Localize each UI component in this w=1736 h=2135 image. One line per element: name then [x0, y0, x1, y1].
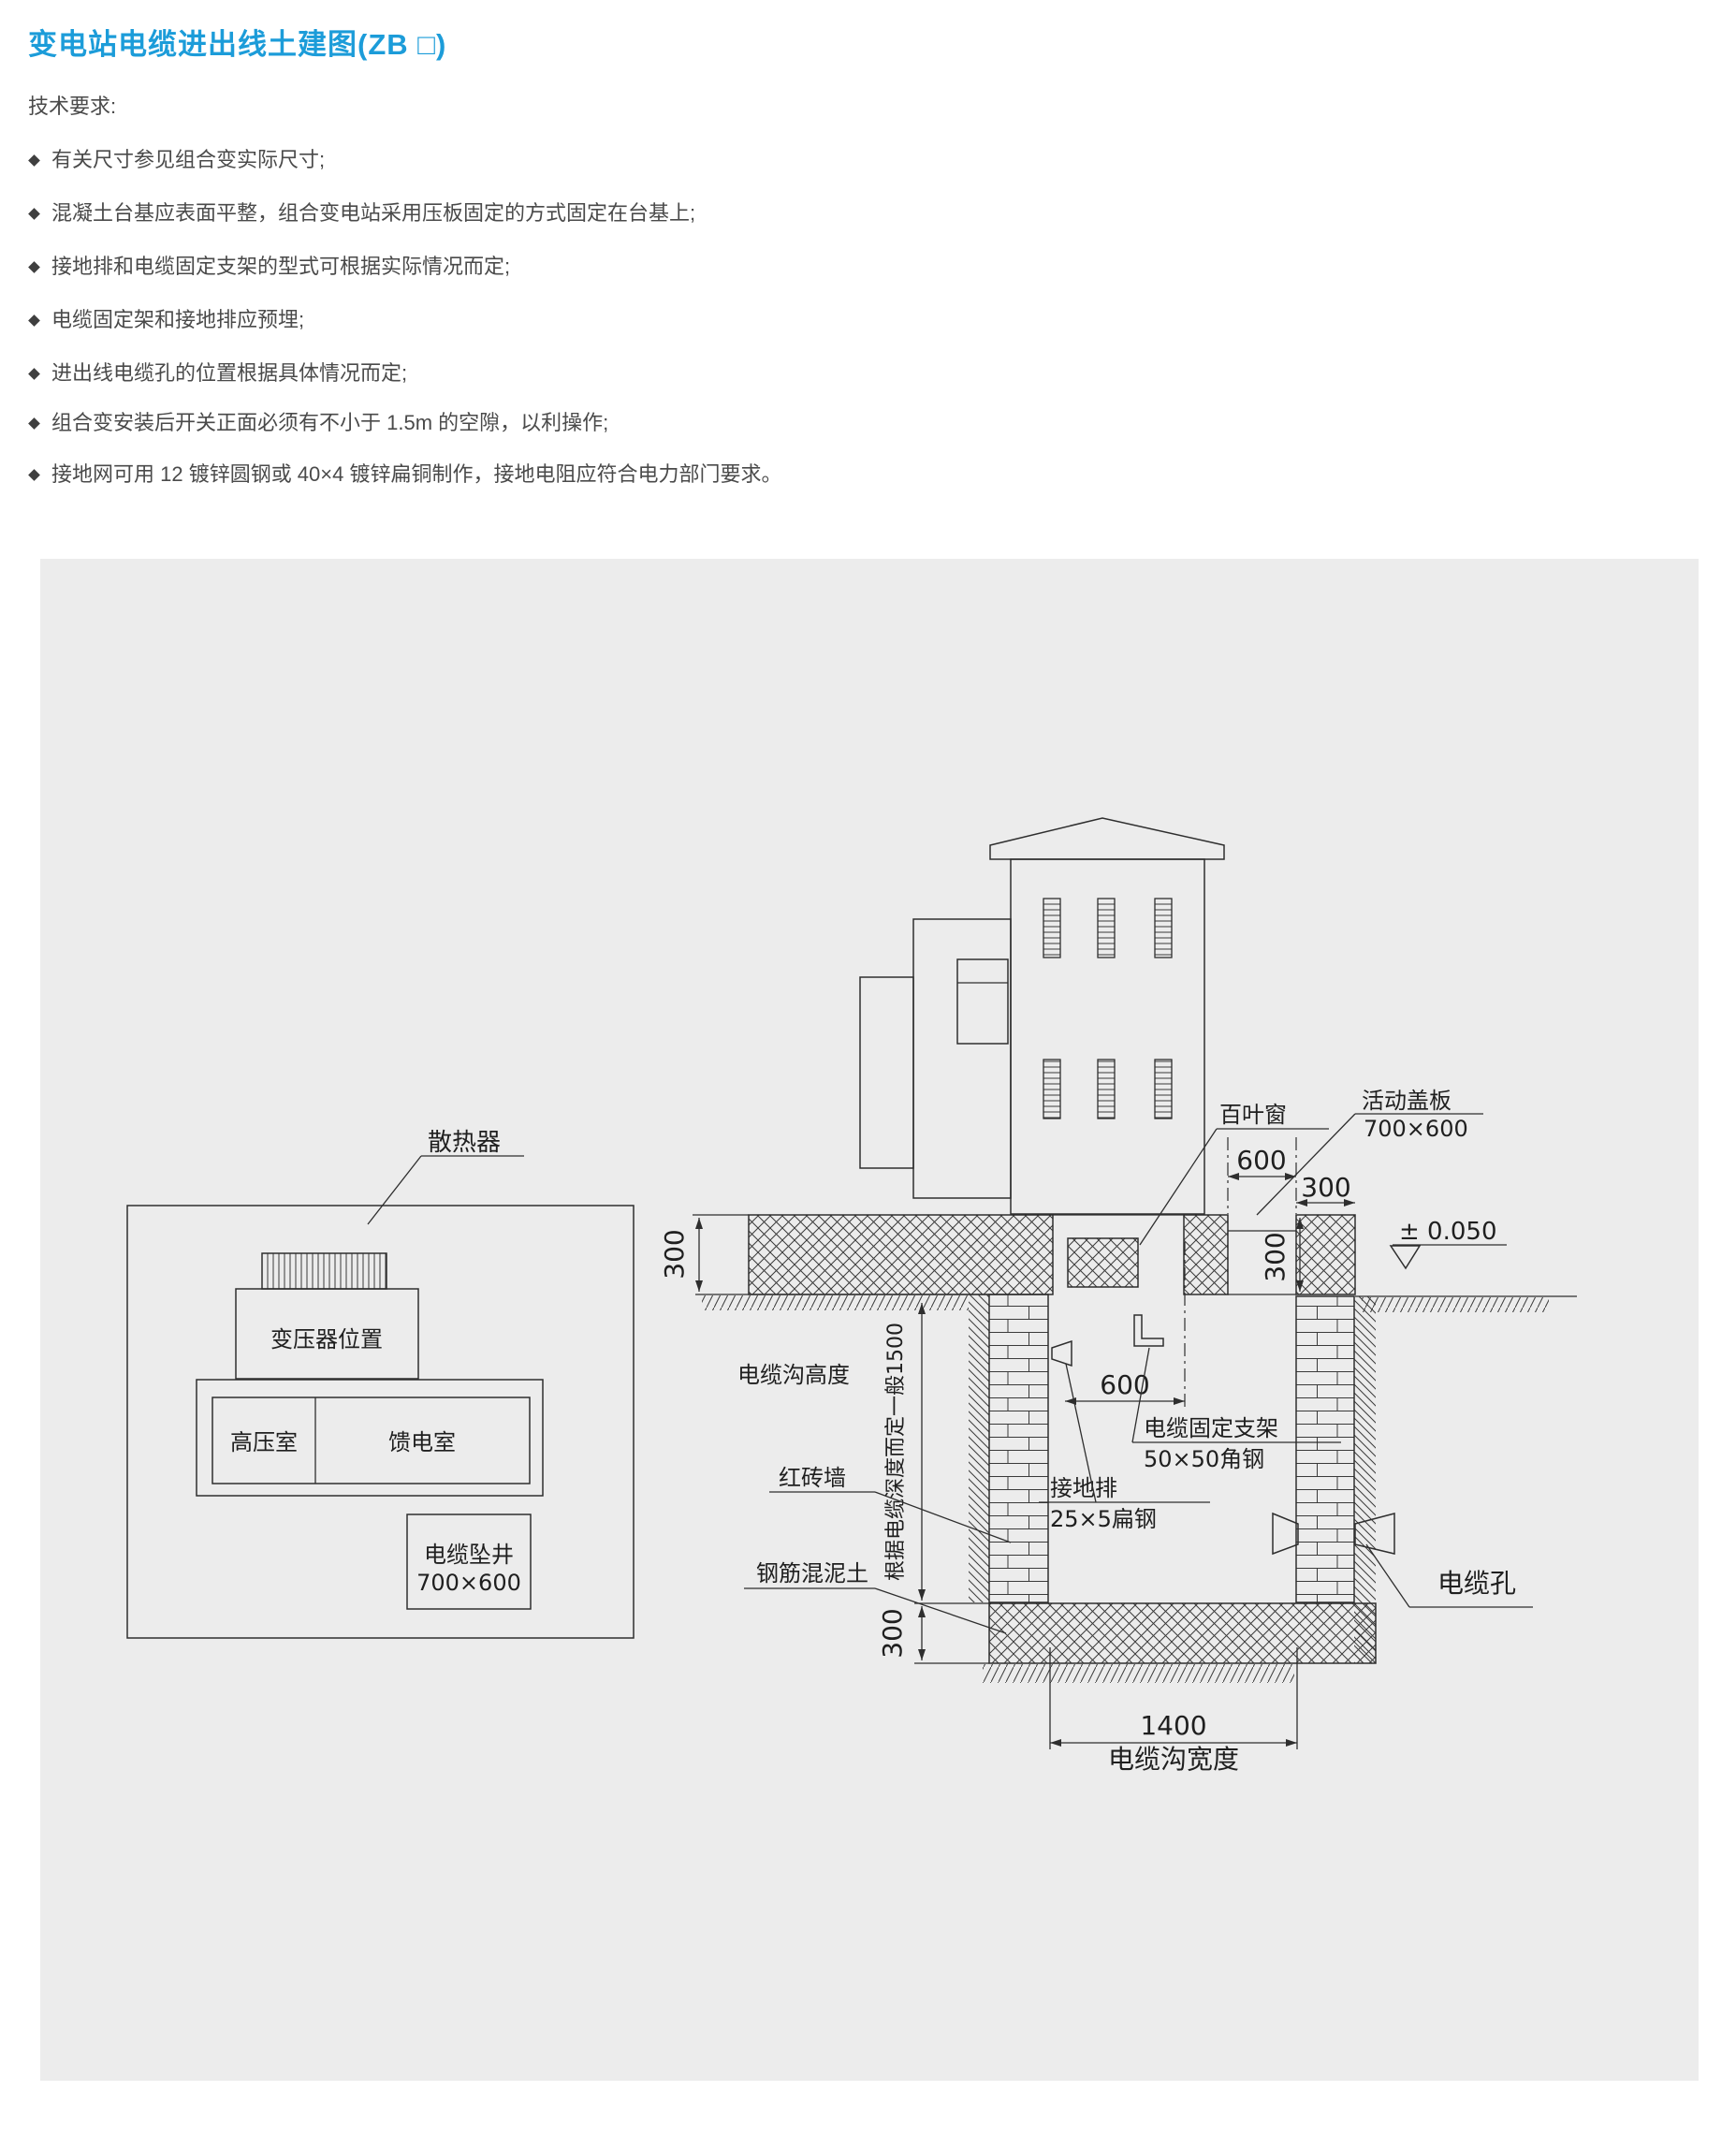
requirement-item: 接地排和电缆固定支架的型式可根据实际情况而定; [28, 250, 510, 280]
ground-bar-spec: 25×5扁钢 [1050, 1506, 1157, 1532]
cabinet-vent [1098, 899, 1115, 958]
bullet-diamond-icon [28, 261, 40, 273]
plan-cable-well-label: 电缆坠井 [424, 1542, 514, 1568]
requirement-text: 组合变安装后开关正面必须有不小于 1.5m 的空隙，以利操作; [51, 411, 608, 434]
cable-bracket-label: 电缆固定支架 [1144, 1415, 1278, 1441]
document-page: 变电站电缆进出线土建图(ZB □) 技术要求: 有关尺寸参见组合变实际尺寸; 混… [0, 0, 1736, 2135]
requirement-text: 进出线电缆孔的位置根据具体情况而定; [51, 361, 407, 385]
brick-wall-left [989, 1294, 1048, 1602]
cabinet-radiator-profile [913, 919, 1011, 1198]
section-view: 300 600 300 300 根据电缆深度而定一般1500 300 600 [659, 818, 1577, 1775]
ground-hatch-right [1362, 1297, 1549, 1312]
cabinet-vent [1098, 1060, 1115, 1119]
concrete-pad-middle [1184, 1215, 1228, 1294]
trench-depth-note: 根据电缆深度而定一般1500 [884, 1323, 908, 1581]
brick-wall-right [1296, 1296, 1354, 1602]
plan-hv-room-label: 高压室 [230, 1429, 298, 1455]
requirement-text: 接地网可用 12 镀锌圆钢或 40×4 镀锌扁铜制作，接地电阻应符合电力部门要求… [51, 462, 781, 486]
requirement-text: 电缆固定架和接地排应预埋; [51, 308, 304, 331]
bullet-diamond-icon [28, 368, 40, 380]
cabinet-roof [990, 818, 1224, 859]
plan-feeder-room-label: 馈电室 [388, 1429, 456, 1455]
cabinet-vent [1155, 1060, 1172, 1119]
cabinet-radiator-profile-outer [860, 977, 913, 1168]
cabinet-vent [1155, 899, 1172, 958]
cover-width-value: 600 [1236, 1145, 1286, 1176]
level-mark-value: ± 0.050 [1399, 1218, 1496, 1246]
level-mark-triangle-icon [1391, 1246, 1420, 1268]
ground-bar-bracket [1052, 1341, 1072, 1366]
requirement-item: 电缆固定架和接地排应预埋; [28, 303, 304, 333]
concrete-bottom-slab [989, 1603, 1376, 1663]
civil-work-drawing: 变压器位置 高压室 馈电室 电缆坠井 700×600 散热器 [40, 559, 1699, 2081]
cable-bracket-spec: 50×50角钢 [1144, 1446, 1264, 1472]
requirement-text: 混凝土台基应表面平整，组合变电站采用压板固定的方式固定在台基上; [51, 201, 695, 225]
concrete-pad-left [749, 1215, 1053, 1294]
bullet-diamond-icon [28, 208, 40, 220]
plan-view: 变压器位置 高压室 馈电室 电缆坠井 700×600 散热器 [127, 1129, 634, 1638]
trench-width-label: 电缆沟宽度 [1108, 1744, 1239, 1775]
plan-transformer-label: 变压器位置 [270, 1326, 383, 1353]
requirement-text: 有关尺寸参见组合变实际尺寸; [51, 148, 325, 171]
concrete-pad-right [1296, 1215, 1355, 1294]
bullet-diamond-icon [28, 154, 40, 167]
concrete-label: 钢筋混泥土 [756, 1560, 868, 1587]
cabinet-vent [1043, 1060, 1060, 1119]
slab-thickness-value: 300 [877, 1608, 908, 1658]
plan-radiator [262, 1253, 387, 1289]
soil-strip-left [969, 1294, 989, 1602]
plan-cable-well-size: 700×600 [416, 1570, 521, 1596]
louver-opening-block [1068, 1238, 1138, 1287]
cable-bracket-angle-steel [1134, 1315, 1163, 1346]
recess-depth-value: 300 [1260, 1232, 1291, 1281]
radiator-leader-line [368, 1156, 421, 1224]
requirement-item: 接地网可用 12 镀锌圆钢或 40×4 镀锌扁铜制作，接地电阻应符合电力部门要求… [28, 458, 781, 488]
bullet-diamond-icon [28, 314, 40, 327]
bullet-diamond-icon [28, 417, 40, 430]
ground-hatch-left [702, 1295, 969, 1310]
requirement-item: 进出线电缆孔的位置根据具体情况而定; [28, 357, 407, 387]
bullet-diamond-icon [28, 469, 40, 481]
right-pad-width-value: 300 [1301, 1172, 1350, 1203]
cabinet-side-panel [957, 959, 1008, 1044]
requirement-item: 混凝土台基应表面平整，组合变电站采用压板固定的方式固定在台基上; [28, 197, 695, 227]
trench-height-label: 电缆沟高度 [737, 1362, 850, 1388]
cover-plate-label: 活动盖板 [1362, 1088, 1452, 1114]
tech-requirements-heading: 技术要求: [28, 90, 116, 120]
subslab-ground-hatch [983, 1664, 1294, 1683]
page-title: 变电站电缆进出线土建图(ZB □) [28, 21, 446, 63]
drawing-panel: 变压器位置 高压室 馈电室 电缆坠井 700×600 散热器 [40, 559, 1699, 2081]
louver-label: 百叶窗 [1219, 1102, 1287, 1128]
pad-thickness-value: 300 [659, 1229, 690, 1279]
cabinet-vent [1043, 899, 1060, 958]
requirement-item: 组合变安装后开关正面必须有不小于 1.5m 的空隙，以利操作; [28, 406, 608, 436]
ground-bar-label: 接地排 [1050, 1475, 1117, 1501]
requirement-item: 有关尺寸参见组合变实际尺寸; [28, 143, 325, 173]
requirement-text: 接地排和电缆固定支架的型式可根据实际情况而定; [51, 255, 510, 278]
cable-hole-inner-trumpet [1273, 1514, 1298, 1554]
brick-wall-label: 红砖墙 [779, 1465, 846, 1491]
cover-plate-size: 700×600 [1364, 1116, 1468, 1142]
cable-hole-label: 电缆孔 [1437, 1568, 1516, 1599]
trench-width-value: 1400 [1140, 1710, 1206, 1741]
plan-radiator-label: 散热器 [428, 1129, 501, 1157]
